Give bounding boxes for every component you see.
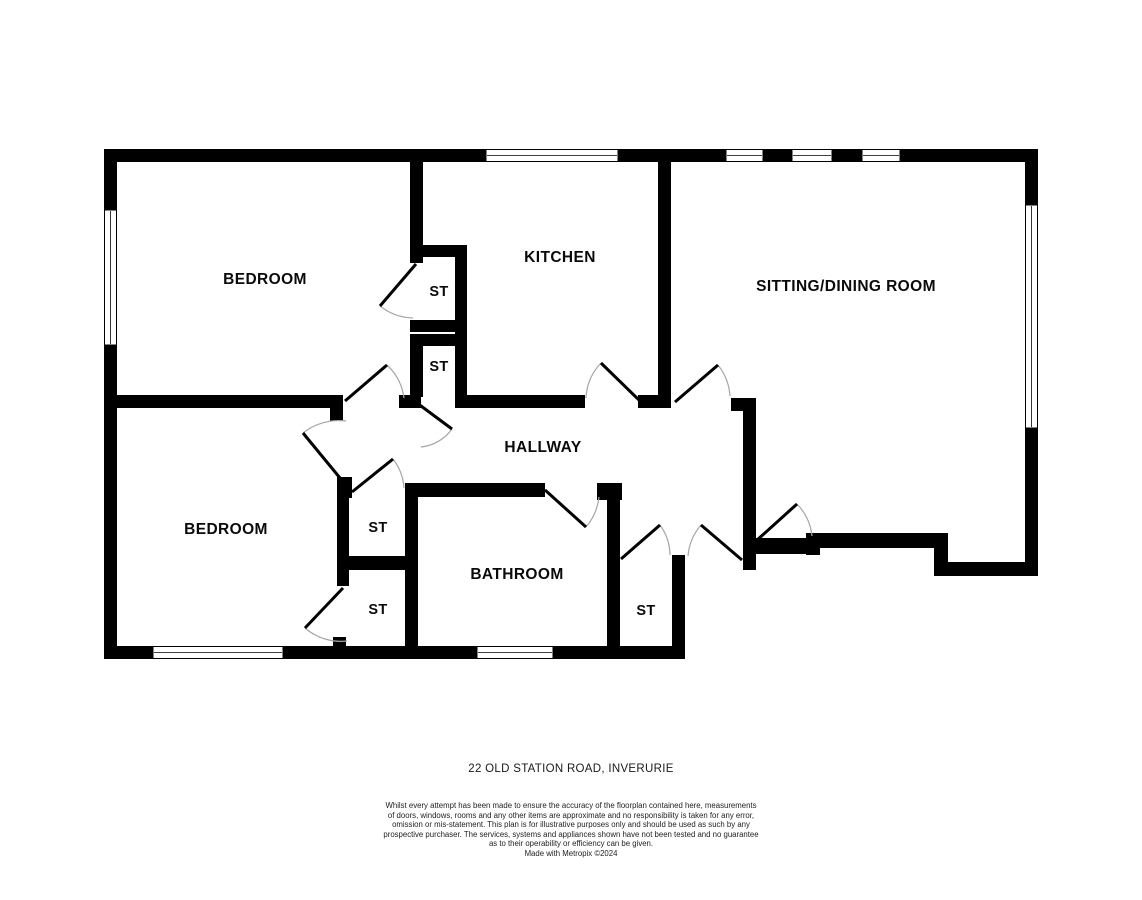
wall-st-lower-divider	[337, 556, 407, 570]
door-arc	[660, 525, 670, 555]
door-arc	[718, 365, 730, 396]
wall-st-upper2-left	[410, 334, 423, 397]
wall-st-upper2-foot	[399, 395, 421, 408]
door-leaf-hall-sitting	[675, 365, 718, 402]
door-arc	[387, 365, 404, 398]
disclaimer-line: as to their operability or efficiency ca…	[0, 839, 1142, 849]
door-leaf-bathroom	[545, 490, 586, 527]
disclaimer: Whilst every attempt has been made to en…	[0, 801, 1142, 858]
label-kitchen: KITCHEN	[524, 249, 596, 266]
room-labels: BEDROOM KITCHEN SITTING/DINING ROOM HALL…	[184, 249, 936, 619]
door-arc	[797, 504, 812, 536]
label-st-lower2: ST	[368, 602, 387, 618]
wall-bathroom-right	[607, 487, 620, 659]
walls	[104, 149, 1038, 659]
disclaimer-line: prospective purchaser. The services, sys…	[0, 830, 1142, 840]
floorplan-page: BEDROOM KITCHEN SITTING/DINING ROOM HALL…	[0, 0, 1142, 900]
label-st-right: ST	[636, 603, 655, 619]
door-leaf-bedroom1	[345, 365, 387, 401]
door-arc	[380, 306, 413, 318]
door-leaf-st-upper1	[380, 264, 416, 306]
wall-hall-bottom-bar	[743, 538, 818, 554]
wall-st-upper-mid1	[410, 320, 467, 332]
wall-kitchen-bottom	[455, 395, 585, 408]
label-st-upper1: ST	[429, 284, 448, 300]
wall-bedroom1-bottom	[104, 395, 343, 408]
wall-st-right-right	[672, 555, 685, 659]
door-leaf-st-upper2	[417, 403, 452, 429]
door-leaf-entrance	[701, 525, 742, 560]
door-arc	[688, 525, 701, 556]
door-leaf-kitchen	[601, 363, 640, 401]
address-title: 22 OLD STATION ROAD, INVERURIE	[0, 763, 1142, 775]
wall-st-lower-bottom-stub	[333, 637, 346, 650]
door-leaf-st-right	[621, 525, 660, 559]
wall-bedroom1-stub	[330, 395, 343, 421]
disclaimer-line: Whilst every attempt has been made to en…	[0, 801, 1142, 811]
label-st-lower1: ST	[368, 520, 387, 536]
credit-line: Made with Metropix ©2024	[0, 849, 1142, 859]
door-leaf-st-lower2	[305, 588, 343, 628]
label-st-upper2: ST	[429, 359, 448, 375]
wall-kitchen-sitting	[658, 162, 671, 408]
label-bedroom-bottom: BEDROOM	[184, 521, 268, 538]
label-sitting-dining: SITTING/DINING ROOM	[756, 278, 936, 295]
wall-sitting-step-bottom	[934, 562, 1038, 576]
disclaimer-line: of doors, windows, rooms and any other i…	[0, 811, 1142, 821]
label-bathroom: BATHROOM	[470, 566, 563, 583]
disclaimer-line: omission or mis-statement. This plan is …	[0, 820, 1142, 830]
label-hallway: HALLWAY	[504, 439, 581, 456]
door-arc	[586, 497, 599, 527]
door-arc	[421, 429, 452, 447]
door-arc	[393, 459, 404, 488]
label-bedroom-top: BEDROOM	[223, 271, 307, 288]
wall-bathroom-top	[405, 483, 545, 497]
door-arc	[303, 421, 346, 433]
door-arc	[586, 363, 601, 398]
door-leaf-bedroom2	[303, 433, 340, 478]
wall-bathroom-left	[405, 483, 418, 659]
wall-sitting-step-top	[806, 533, 948, 548]
door-leaf-st-lower1	[352, 459, 393, 492]
door-leaf-sitting-lower	[756, 504, 797, 541]
